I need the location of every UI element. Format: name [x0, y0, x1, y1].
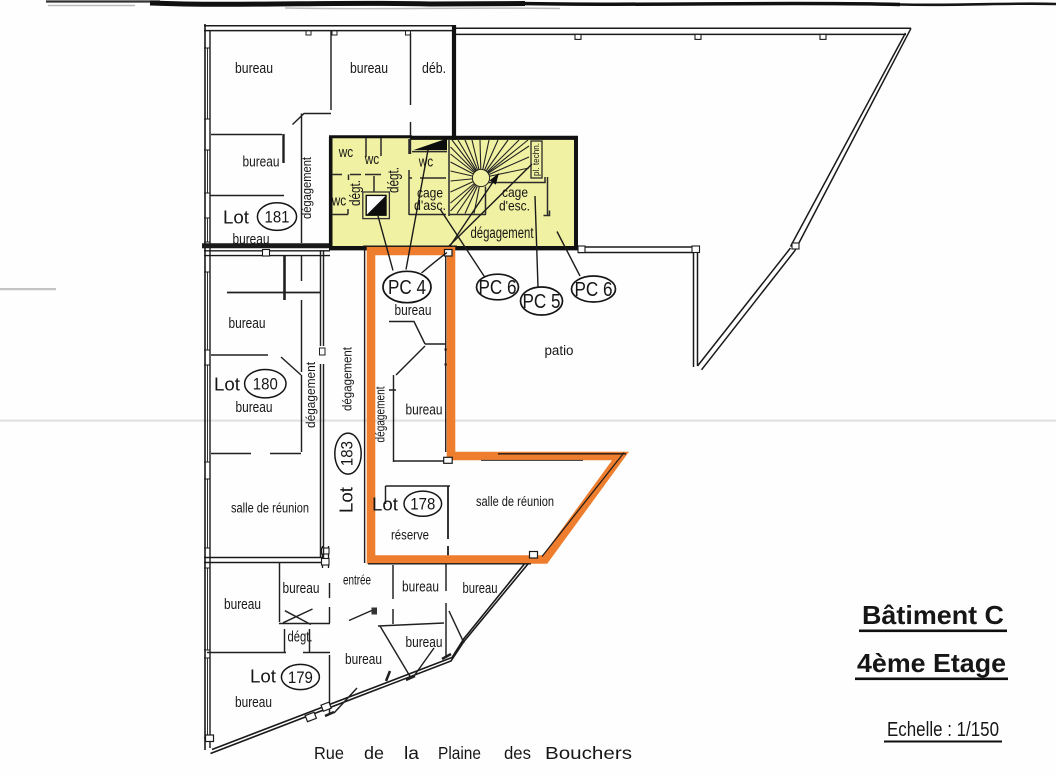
svg-text:déb.: déb.: [422, 61, 446, 77]
svg-text:Bouchers: Bouchers: [545, 743, 632, 763]
svg-text:Lot: Lot: [250, 667, 276, 687]
svg-text:des: des: [504, 743, 531, 763]
svg-text:bureau: bureau: [243, 155, 280, 171]
svg-text:bureau: bureau: [233, 232, 270, 248]
svg-text:dégt.: dégt.: [386, 167, 403, 193]
svg-text:bureau: bureau: [350, 61, 388, 77]
svg-text:réserve: réserve: [391, 528, 429, 543]
svg-text:bureau: bureau: [406, 635, 443, 651]
svg-text:Lot: Lot: [223, 208, 249, 228]
svg-text:180: 180: [253, 376, 278, 394]
svg-text:de: de: [364, 743, 384, 763]
svg-text:Bâtiment C: Bâtiment C: [862, 600, 1004, 630]
svg-text:Lot: Lot: [214, 375, 240, 395]
svg-text:bureau: bureau: [235, 695, 272, 711]
svg-text:dégt.: dégt.: [348, 180, 364, 206]
svg-text:dégagement: dégagement: [339, 347, 354, 411]
svg-text:la: la: [404, 743, 419, 763]
svg-text:entrée: entrée: [343, 573, 371, 588]
svg-text:dégagement: dégagement: [372, 386, 387, 442]
svg-text:salle de réunion: salle de réunion: [231, 501, 309, 516]
svg-text:183: 183: [338, 441, 356, 466]
svg-text:dégagement: dégagement: [299, 157, 314, 219]
svg-text:d'asc.: d'asc.: [414, 197, 446, 213]
svg-text:wc: wc: [418, 155, 433, 171]
svg-text:bureau: bureau: [235, 61, 273, 77]
svg-text:d'esc.: d'esc.: [499, 198, 530, 214]
svg-text:bureau: bureau: [402, 580, 439, 596]
svg-text:Lot: Lot: [372, 495, 398, 515]
svg-text:181: 181: [265, 208, 290, 226]
svg-text:Rue: Rue: [314, 743, 344, 763]
svg-text:Lot: Lot: [336, 487, 356, 513]
svg-text:PC 6: PC 6: [479, 277, 517, 299]
svg-text:bureau: bureau: [236, 400, 273, 416]
svg-text:178: 178: [410, 495, 435, 513]
svg-text:wc: wc: [338, 145, 353, 161]
svg-text:bureau: bureau: [463, 581, 498, 597]
svg-text:bureau: bureau: [345, 652, 382, 668]
svg-text:dégagement: dégagement: [303, 362, 318, 428]
svg-text:bureau: bureau: [406, 403, 443, 419]
svg-text:PC 4: PC 4: [388, 277, 426, 299]
svg-text:bureau: bureau: [229, 316, 266, 332]
svg-text:179: 179: [288, 669, 313, 687]
svg-text:bureau: bureau: [395, 303, 432, 319]
svg-text:salle de réunion: salle de réunion: [476, 494, 554, 509]
svg-text:PC 5: PC 5: [523, 291, 561, 313]
svg-text:patio: patio: [545, 343, 574, 358]
svg-text:wc: wc: [364, 152, 379, 168]
svg-text:dégt.: dégt.: [288, 630, 313, 646]
svg-text:bureau: bureau: [283, 581, 320, 597]
svg-text:Plaine: Plaine: [438, 743, 481, 763]
svg-text:bureau: bureau: [224, 597, 261, 613]
svg-text:PC 6: PC 6: [575, 279, 613, 301]
svg-text:Echelle : 1/150: Echelle : 1/150: [887, 719, 999, 741]
svg-text:4ème Etage: 4ème Etage: [857, 648, 1006, 678]
svg-text:wc: wc: [331, 194, 346, 210]
svg-text:pl. techn.: pl. techn.: [531, 143, 542, 176]
svg-text:dégagement: dégagement: [471, 225, 535, 242]
